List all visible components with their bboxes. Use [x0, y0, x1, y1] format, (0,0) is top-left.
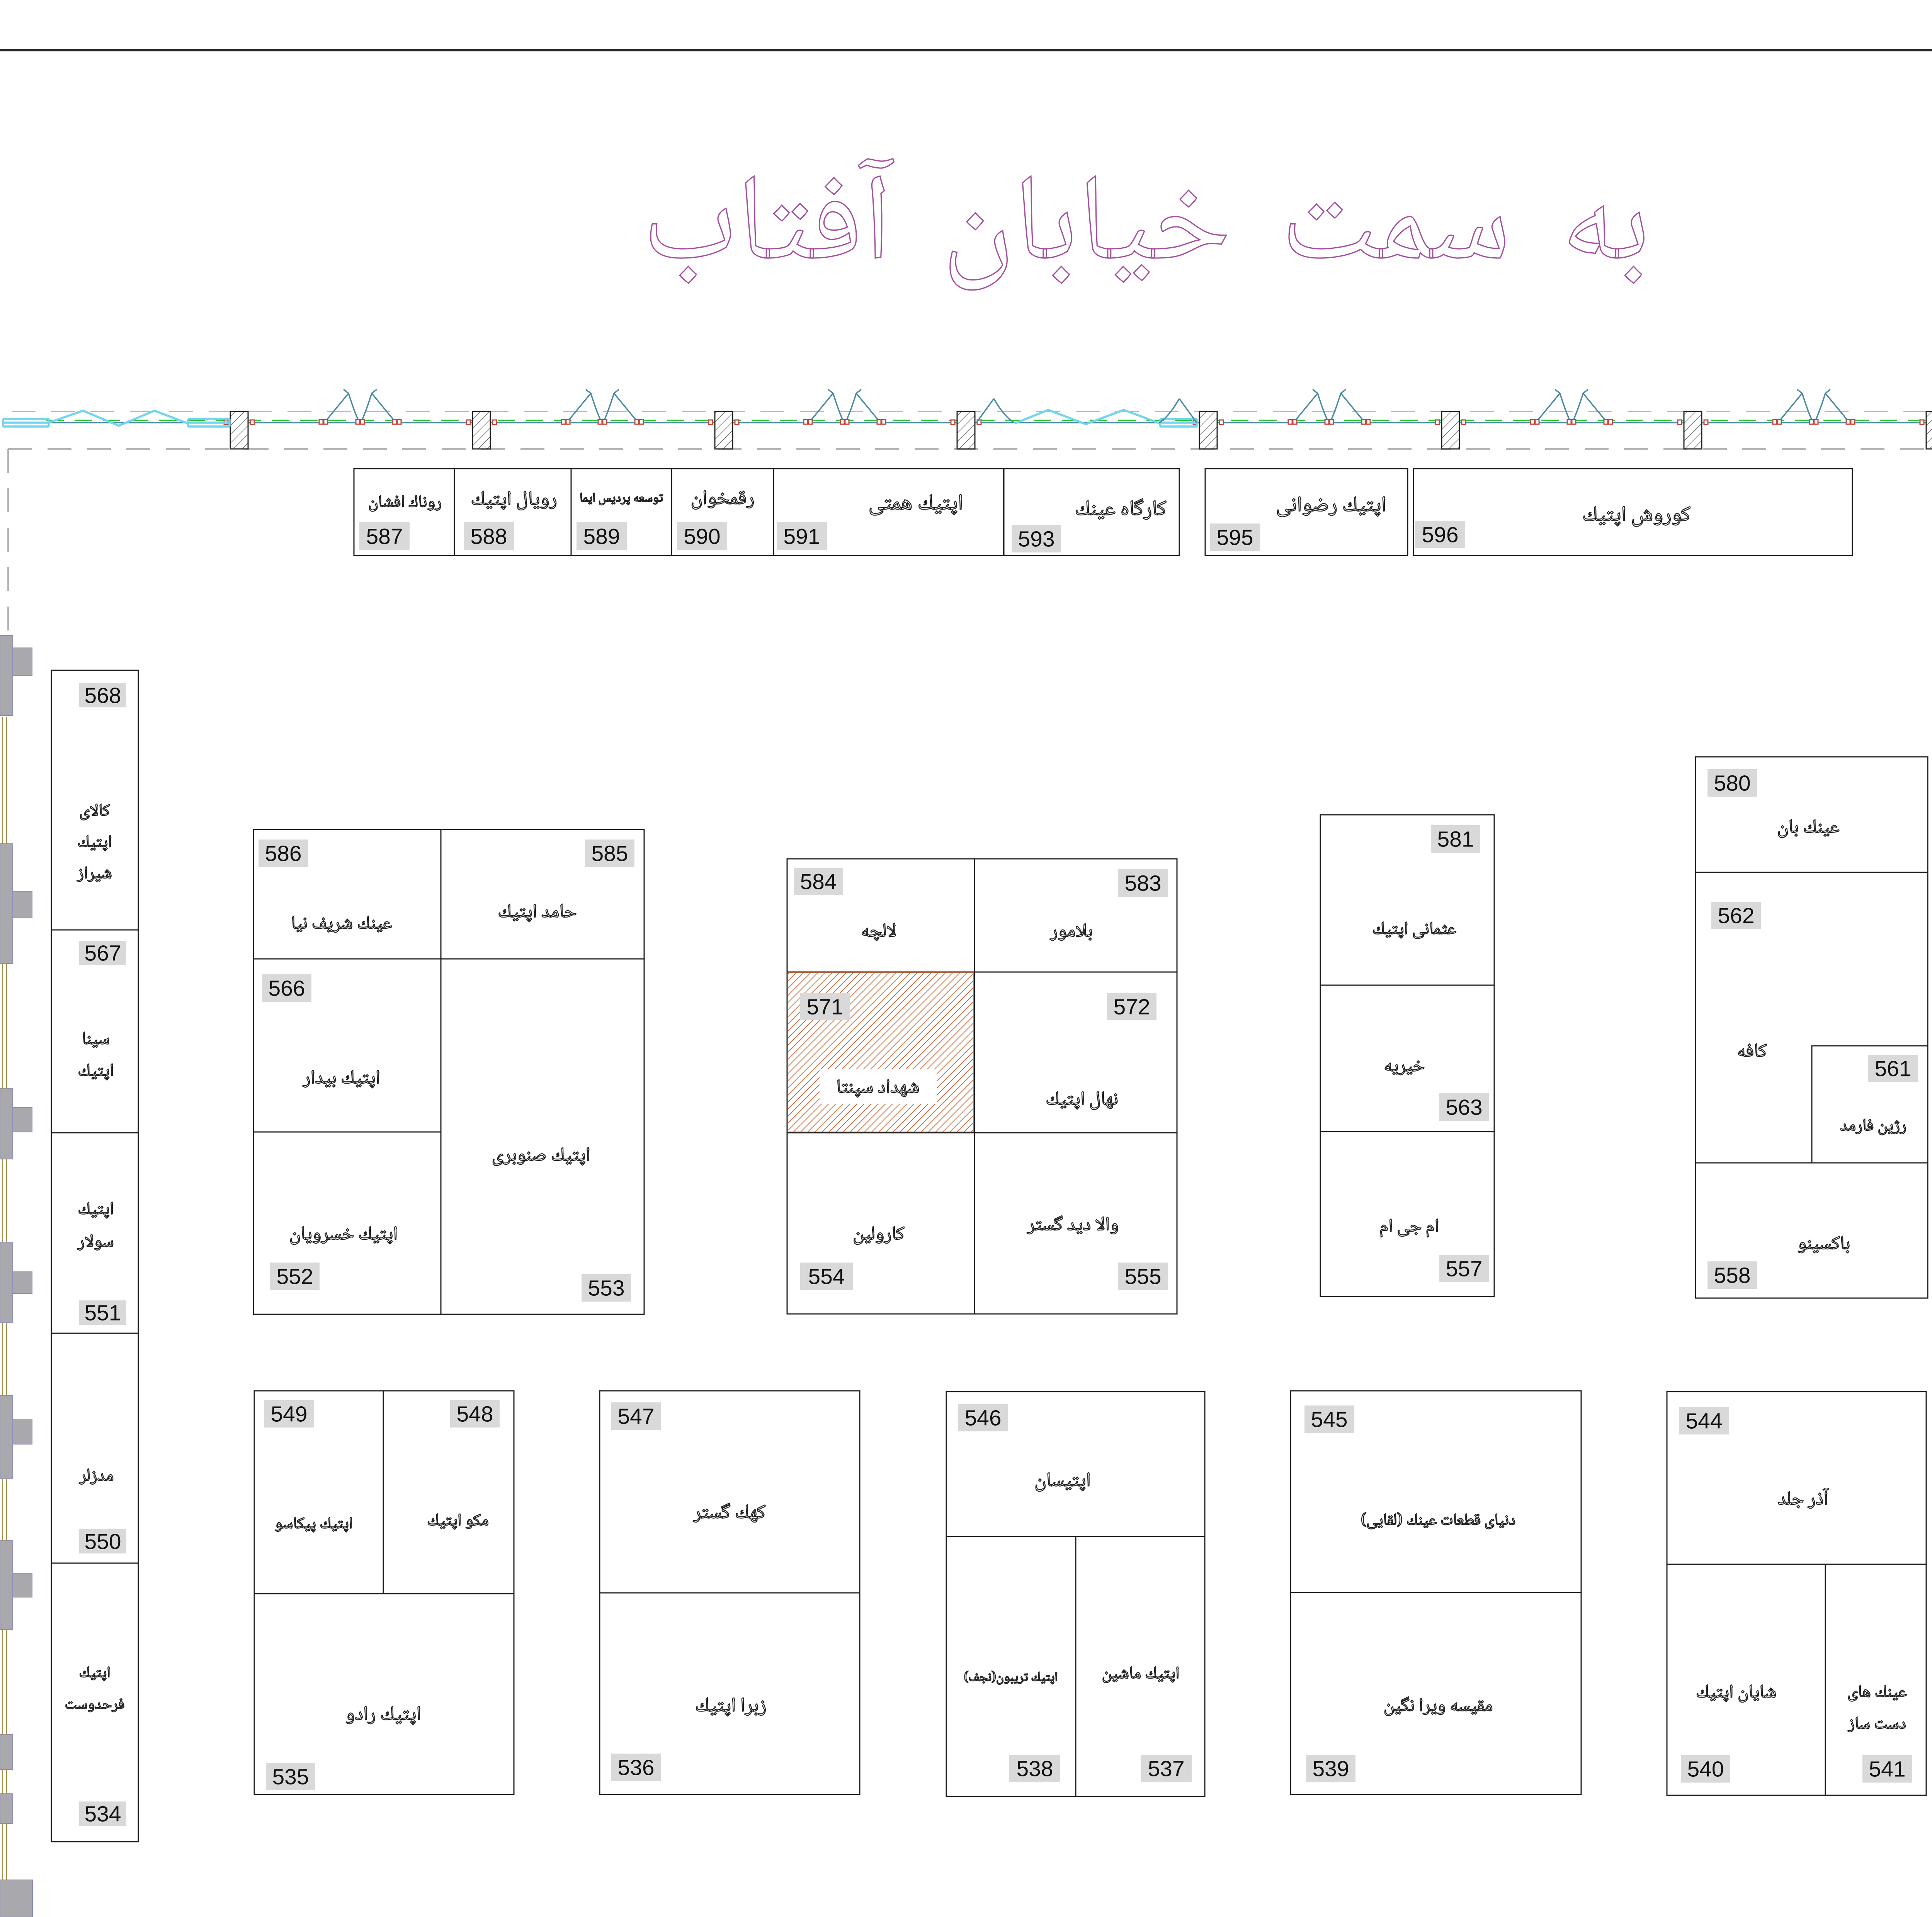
svg-text:كارگاه عينك: كارگاه عينك	[1075, 492, 1167, 529]
svg-text:فرحدوست: فرحدوست	[65, 1693, 124, 1719]
svg-text:رژين فارمد: رژين فارمد	[1840, 1112, 1906, 1141]
svg-text:561: 561	[1874, 1056, 1911, 1081]
svg-text:538: 538	[1016, 1756, 1053, 1781]
svg-text:رويال اپتيك: رويال اپتيك	[471, 483, 557, 518]
svg-text:اپتيسان: اپتيسان	[1034, 1465, 1091, 1499]
svg-text:كهك گستر: كهك گستر	[693, 1497, 766, 1531]
svg-text:550: 550	[84, 1529, 121, 1554]
svg-text:حامد اپتيك: حامد اپتيك	[498, 897, 577, 930]
svg-text:555: 555	[1124, 1264, 1161, 1289]
svg-text:اپتيك: اپتيك	[78, 1057, 114, 1088]
svg-text:587: 587	[366, 524, 403, 549]
svg-text:والا ديد گستر: والا ديد گستر	[1027, 1210, 1119, 1242]
svg-text:شهداد سپنتا: شهداد سپنتا	[836, 1072, 919, 1105]
svg-text:595: 595	[1216, 525, 1253, 550]
svg-text:554: 554	[808, 1264, 845, 1289]
svg-text:سولار: سولار	[77, 1228, 114, 1258]
svg-text:568: 568	[84, 683, 121, 708]
svg-text:شايان اپتيك: شايان اپتيك	[1696, 1678, 1777, 1709]
svg-text:586: 586	[265, 841, 301, 866]
svg-text:584: 584	[800, 869, 837, 894]
svg-text:547: 547	[617, 1404, 654, 1429]
svg-text:كارولين: كارولين	[853, 1219, 905, 1252]
svg-text:551: 551	[84, 1300, 121, 1325]
svg-text:كوروش اپتيك: كوروش اپتيك	[1582, 498, 1690, 535]
svg-text:567: 567	[84, 941, 121, 965]
svg-text:اپتيك رادو: اپتيك رادو	[345, 1698, 421, 1733]
svg-text:دست ساز: دست ساز	[1848, 1710, 1906, 1739]
svg-text:عينك بان: عينك بان	[1777, 812, 1839, 845]
svg-text:اپتيك پيكاسو: اپتيك پيكاسو	[275, 1511, 353, 1538]
svg-text:548: 548	[456, 1402, 493, 1426]
svg-text:زبرا اپتيك: زبرا اپتيك	[695, 1690, 766, 1724]
svg-text:553: 553	[588, 1276, 624, 1300]
svg-text:589: 589	[583, 524, 620, 549]
svg-text:541: 541	[1869, 1757, 1905, 1781]
svg-text:اپتيك: اپتيك	[78, 1196, 114, 1226]
svg-text:566: 566	[268, 976, 305, 1001]
svg-text:536: 536	[617, 1755, 654, 1780]
svg-text:به سمت خيابان آفتاب: به سمت خيابان آفتاب	[642, 128, 1650, 336]
svg-text:مقيسه ويرا نگين: مقيسه ويرا نگين	[1384, 1691, 1493, 1723]
svg-text:باكسينو: باكسينو	[1798, 1229, 1850, 1261]
svg-text:588: 588	[470, 524, 507, 549]
svg-text:585: 585	[591, 841, 628, 866]
svg-text:557: 557	[1446, 1256, 1482, 1281]
svg-text:مكو اپتيك: مكو اپتيك	[427, 1507, 489, 1536]
svg-text:552: 552	[276, 1264, 313, 1289]
svg-text:581: 581	[1437, 827, 1474, 851]
svg-text:583: 583	[1124, 871, 1161, 896]
svg-text:596: 596	[1422, 522, 1458, 547]
svg-text:خيريه: خيريه	[1384, 1052, 1424, 1083]
svg-text:عثمانى اپتيك: عثمانى اپتيك	[1372, 916, 1457, 946]
svg-text:سينا: سينا	[82, 1026, 110, 1056]
svg-text:534: 534	[84, 1801, 121, 1826]
svg-text:آذر جلد: آذر جلد	[1778, 1484, 1829, 1517]
svg-text:580: 580	[1714, 771, 1750, 795]
svg-text:كافه: كافه	[1737, 1036, 1767, 1069]
svg-text:540: 540	[1687, 1757, 1724, 1781]
svg-text:رقمخوان: رقمخوان	[690, 483, 754, 517]
svg-text:مدزلر: مدزلر	[79, 1462, 114, 1492]
svg-text:546: 546	[964, 1405, 1001, 1430]
svg-text:537: 537	[1148, 1756, 1184, 1781]
svg-text:اپتيك: اپتيك	[79, 1661, 110, 1687]
svg-text:اپتيك رضوانى: اپتيك رضوانى	[1276, 488, 1386, 525]
svg-text:روناك افشان: روناك افشان	[368, 489, 442, 518]
svg-text:591: 591	[783, 524, 820, 549]
svg-text:545: 545	[1311, 1407, 1347, 1432]
svg-text:590: 590	[684, 524, 720, 549]
svg-text:دنياى قطعات عينك (لقايى): دنياى قطعات عينك (لقايى)	[1361, 1507, 1516, 1535]
svg-text:549: 549	[270, 1402, 307, 1426]
svg-text:539: 539	[1312, 1756, 1349, 1781]
svg-text:اپتيك خسرويان: اپتيك خسرويان	[289, 1219, 398, 1252]
svg-text:593: 593	[1018, 527, 1054, 551]
svg-text:544: 544	[1685, 1409, 1722, 1433]
svg-text:اپتيك ماشين: اپتيك ماشين	[1102, 1660, 1179, 1689]
svg-text:535: 535	[272, 1764, 309, 1789]
svg-text:شيراز: شيراز	[77, 860, 112, 889]
svg-text:558: 558	[1714, 1263, 1750, 1288]
svg-text:اپتيك صنوبرى: اپتيك صنوبرى	[492, 1140, 590, 1173]
svg-text:اپتيك: اپتيك	[77, 829, 112, 858]
svg-text:571: 571	[806, 994, 843, 1019]
svg-text:563: 563	[1446, 1095, 1482, 1120]
svg-text:عينك شريف نيا: عينك شريف نيا	[291, 909, 392, 940]
svg-text:اپتيك همتى: اپتيك همتى	[868, 486, 963, 524]
svg-text:عينك های: عينك های	[1847, 1679, 1907, 1708]
svg-text:لالچه: لالچه	[861, 916, 896, 949]
svg-text:اپتيك بيدار: اپتيك بيدار	[303, 1063, 380, 1096]
svg-text:توسعه پرديس ايما: توسعه پرديس ايما	[580, 488, 663, 510]
svg-text:نهال اپتيك: نهال اپتيك	[1046, 1084, 1118, 1117]
svg-text:572: 572	[1113, 994, 1150, 1019]
svg-text:بلامور: بلامور	[1050, 916, 1093, 949]
svg-text:اپتيك تريبون(نجف): اپتيك تريبون(نجف)	[964, 1667, 1058, 1689]
svg-text:كالاى: كالاى	[79, 797, 110, 826]
svg-text:ام جى ام: ام جى ام	[1379, 1212, 1439, 1243]
svg-text:562: 562	[1718, 903, 1754, 928]
